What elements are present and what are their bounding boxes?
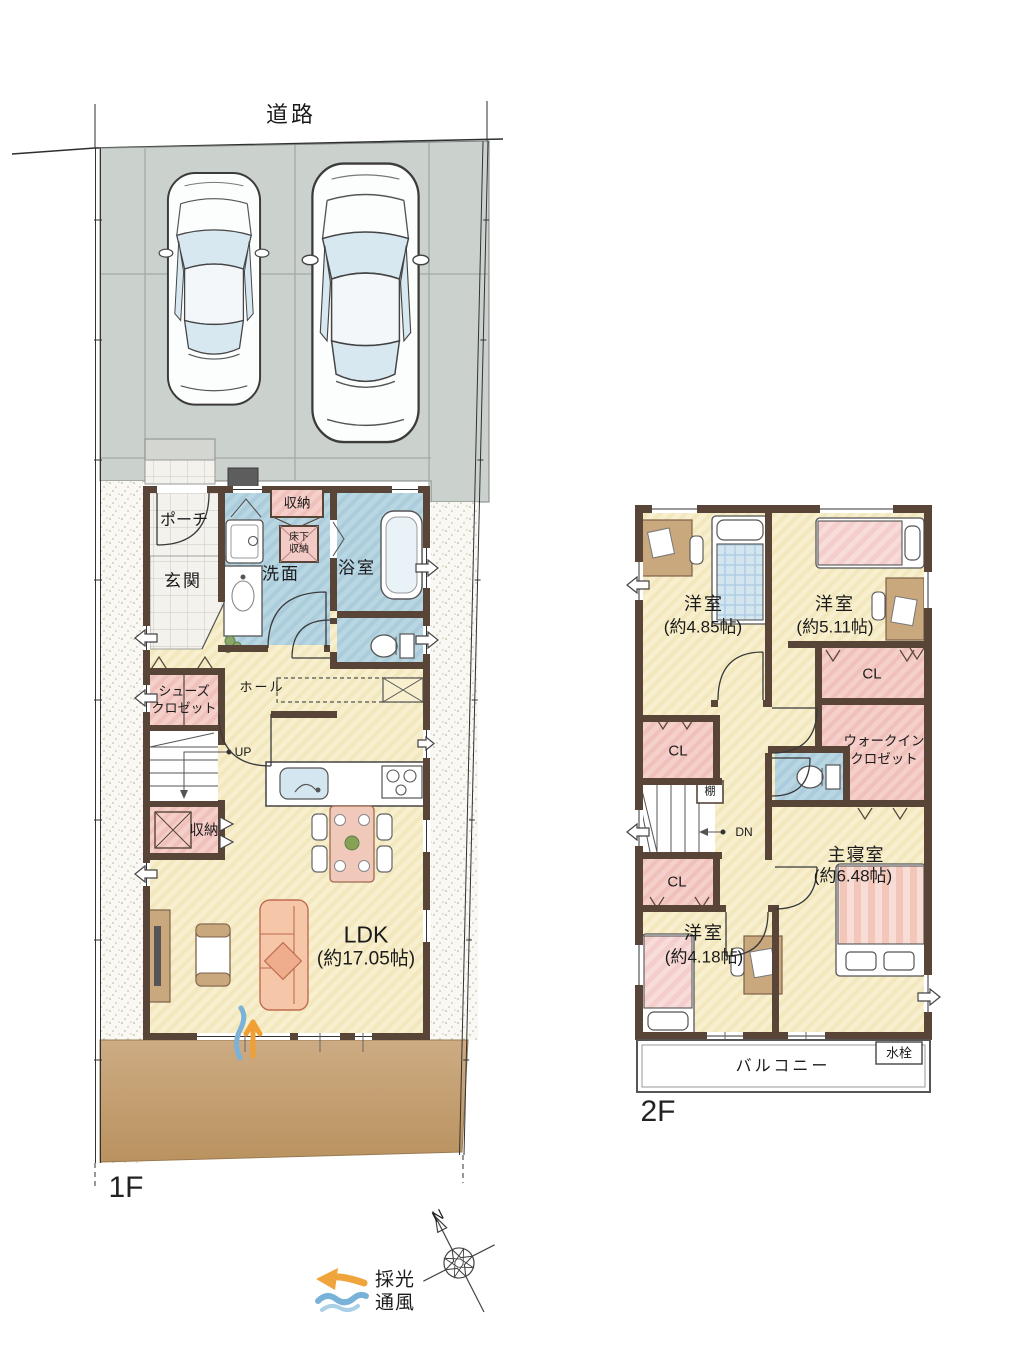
dn-label: DN (735, 826, 752, 838)
bed1-size-label: (約4.85帖) (664, 619, 742, 636)
shoes-closet-label-2: クロゼット (151, 702, 216, 715)
gravel-east (431, 502, 478, 1040)
daylight-legend-arrow (334, 1277, 364, 1283)
porch-step-1 (145, 439, 215, 460)
road-label: 道路 (266, 104, 316, 126)
floor-plan-page: 道路 1F 2F ポーチ 玄関 収納 床下 収納 洗面 浴室 ホール シューズ … (0, 0, 1020, 1361)
bed-room2 (816, 518, 924, 568)
underfloor-label-1: 床下 (289, 533, 309, 543)
bed1-label: 洋室 (684, 595, 724, 613)
toilet-1f (371, 634, 414, 658)
washroom-fixtures (224, 499, 263, 653)
shoes-closet-label-1: シューズ (158, 685, 209, 698)
bed2-label: 洋室 (815, 595, 855, 613)
faucet-label: 水栓 (886, 1047, 912, 1060)
cl-lower-label: CL (667, 875, 686, 890)
bed3-size-label: (約4.18帖) (665, 949, 743, 966)
stove (382, 766, 422, 798)
toilet-2f (797, 765, 840, 789)
master-size-label: (約6.48帖) (814, 868, 892, 885)
car-1 (159, 173, 269, 405)
house-2f (627, 505, 940, 1092)
fence-west (94, 148, 102, 1163)
hall-label: ホール (239, 681, 284, 694)
underfloor-label-2: 収納 (289, 545, 309, 555)
storage-top-label: 収納 (284, 496, 311, 510)
car-2 (302, 164, 429, 442)
storage-mid-label: 収納 (190, 824, 219, 839)
daylight-legend-head (316, 1268, 338, 1290)
washroom-label: 洗面 (262, 566, 300, 583)
bathtub (381, 511, 422, 599)
wic-label-2: クロゼット (850, 752, 918, 766)
ventilation-legend-wave (318, 1295, 366, 1302)
floor1-label: 1F (108, 1173, 143, 1203)
balcony-label: バルコニー (736, 1059, 831, 1075)
cl-right-label: CL (862, 667, 881, 682)
ldk-size-label: (約17.05帖) (317, 950, 415, 969)
legend-graphics (316, 1268, 366, 1310)
kitchen-sink (280, 768, 328, 799)
daylight-label: 採光 (375, 1271, 415, 1290)
floor2-label: 2F (640, 1097, 675, 1127)
shelf-label: 棚 (705, 787, 716, 798)
tv (154, 926, 161, 986)
ldk-label: LDK (344, 924, 389, 947)
bathroom-label: 浴室 (338, 560, 376, 577)
bed3-label: 洋室 (684, 924, 724, 942)
cl-left-label: CL (668, 744, 687, 759)
ventilation-label: 通風 (375, 1294, 415, 1313)
terrace (100, 1040, 468, 1162)
porch-label: ポーチ (160, 513, 208, 529)
compass (397, 1193, 520, 1330)
bed2-size-label: (約5.11帖) (796, 619, 873, 636)
porch-step-2 (145, 460, 215, 484)
entrance-label: 玄関 (164, 573, 202, 590)
up-label: UP (235, 746, 252, 758)
wic-label-1: ウォークイン (844, 734, 925, 748)
master-label: 主寝室 (828, 846, 885, 864)
